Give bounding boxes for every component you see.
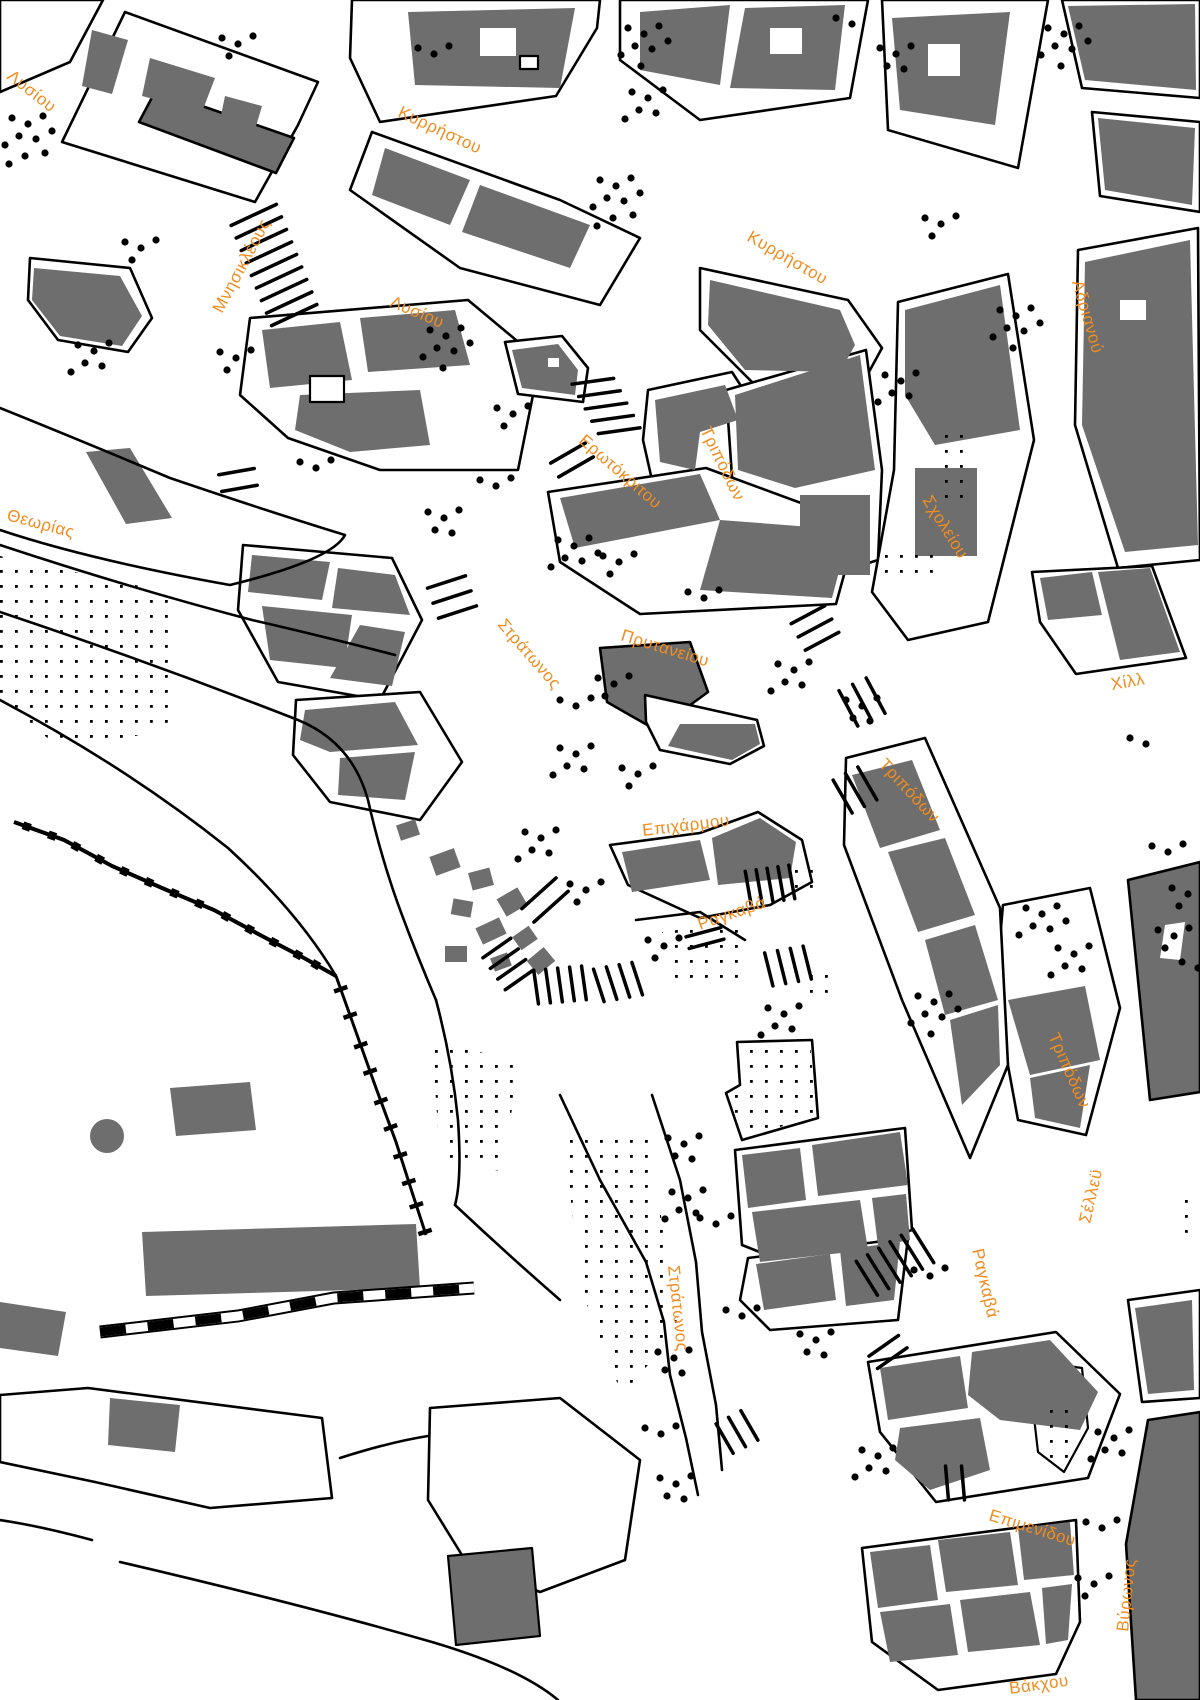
street-label: Σέλλεϋ [1075,1167,1106,1225]
street-label: Ραγκαβά [968,1247,1002,1320]
city-blocks [0,0,1200,1700]
fence-ticks [22,821,432,1234]
street-label: Χίλλ [1109,669,1146,694]
street-map: Λυσίου Κυρρήστου Κυρρήστου Αδριανού Μνησ… [0,0,1200,1700]
street-label: Στράτωνος [494,615,565,693]
map-canvas: Λυσίου Κυρρήστου Κυρρήστου Αδριανού Μνησ… [0,0,1200,1700]
